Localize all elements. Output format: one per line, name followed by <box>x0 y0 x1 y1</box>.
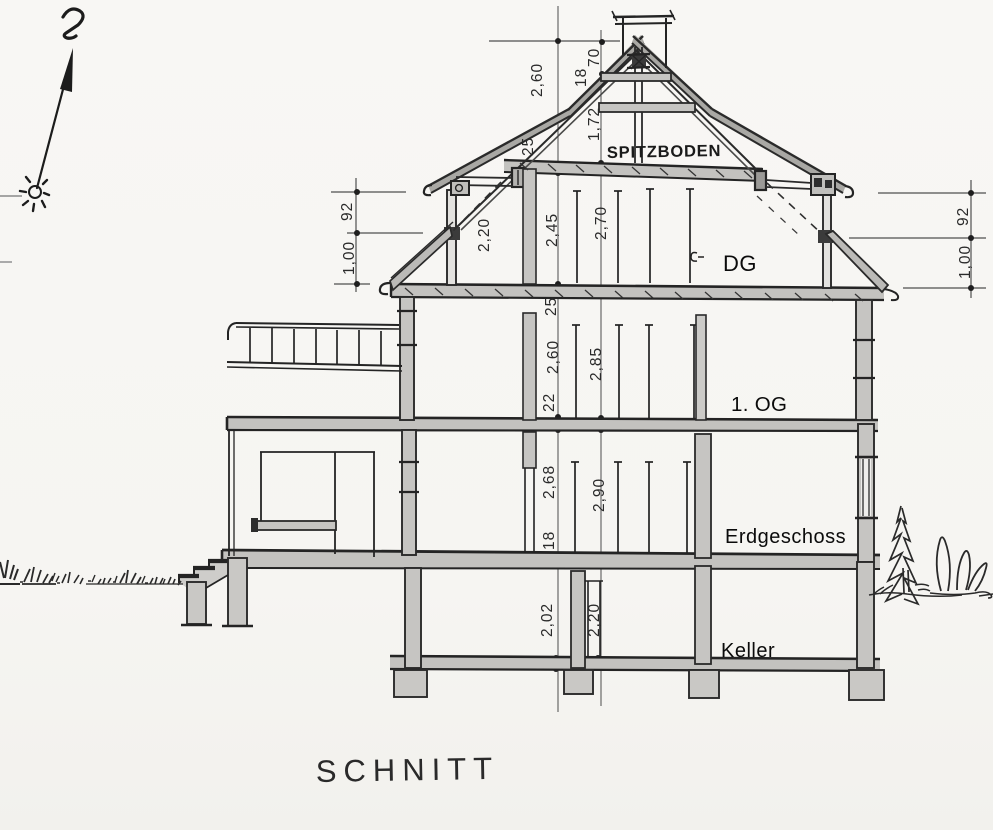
svg-text:92: 92 <box>339 202 356 221</box>
svg-text:1,72: 1,72 <box>586 107 603 141</box>
svg-text:2,90: 2,90 <box>591 478 608 512</box>
svg-text:1,00: 1,00 <box>341 241 358 275</box>
svg-text:2,45: 2,45 <box>544 213 561 247</box>
svg-text:2,20: 2,20 <box>476 218 493 252</box>
svg-text:25: 25 <box>543 297 560 316</box>
svg-text:SCHNITT: SCHNITT <box>316 751 500 789</box>
svg-text:25: 25 <box>520 137 537 156</box>
svg-text:1. OG: 1. OG <box>731 393 787 416</box>
svg-text:SPITZBODEN: SPITZBODEN <box>607 142 722 162</box>
svg-text:Erdgeschoss: Erdgeschoss <box>725 526 846 548</box>
svg-text:2,02: 2,02 <box>539 603 556 637</box>
svg-text:2,70: 2,70 <box>593 206 610 240</box>
svg-text:70: 70 <box>586 48 603 67</box>
svg-text:18: 18 <box>573 68 590 87</box>
svg-text:DG: DG <box>723 251 757 276</box>
svg-text:2,68: 2,68 <box>541 465 558 499</box>
svg-text:2,60: 2,60 <box>545 340 562 374</box>
svg-text:2,60: 2,60 <box>529 63 546 97</box>
svg-text:Keller: Keller <box>721 640 775 662</box>
svg-text:1,00: 1,00 <box>957 245 974 279</box>
svg-text:22: 22 <box>541 393 558 412</box>
svg-text:2,20: 2,20 <box>586 603 603 637</box>
svg-text:18: 18 <box>541 531 558 550</box>
svg-text:2,85: 2,85 <box>588 347 605 381</box>
svg-text:92: 92 <box>955 207 972 226</box>
